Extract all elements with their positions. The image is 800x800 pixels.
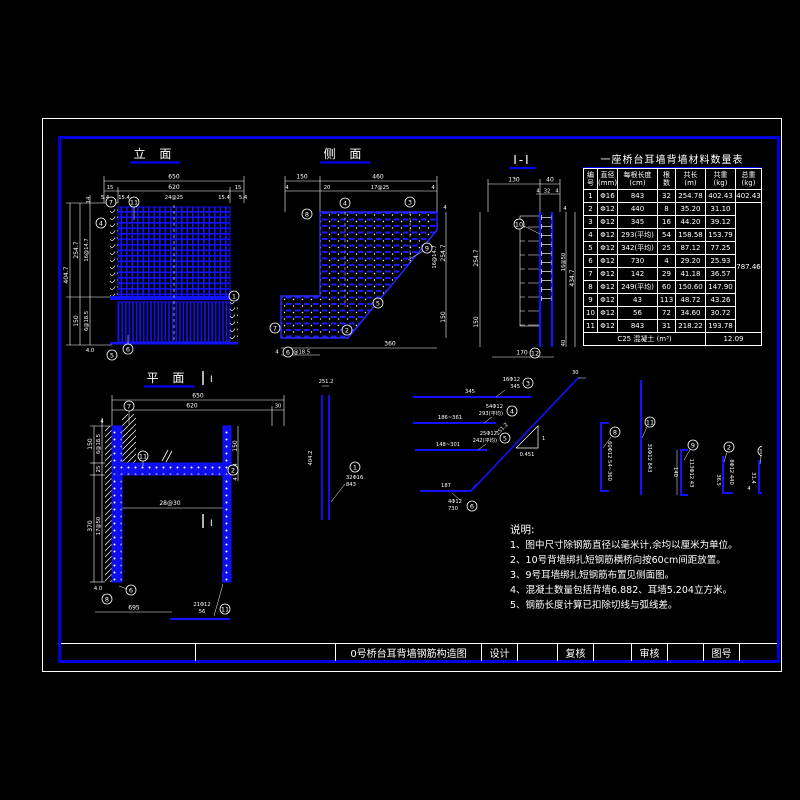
svg-text:4: 4	[99, 220, 103, 228]
dim-label: 15.4	[218, 195, 230, 201]
ref-circle: 6	[126, 585, 136, 595]
ref-circle: 3	[523, 378, 533, 388]
design-value	[518, 644, 558, 661]
plan-bar-callout: 21Φ12 56 11	[170, 572, 230, 619]
ref-circle: 3	[405, 197, 415, 207]
total-rest: 787.46	[736, 203, 762, 333]
ref-circle: 7	[106, 197, 116, 207]
drawing-title: 0号桥台耳背墙钢筋构造图	[336, 644, 482, 661]
ref-circle: 9	[688, 440, 698, 450]
table-cell: 402.43	[706, 190, 736, 203]
titlebar-blank-2	[196, 644, 336, 661]
table-cell: Φ12	[598, 281, 618, 294]
svg-text:11: 11	[139, 453, 147, 461]
dim-label: 4	[285, 185, 289, 191]
svg-text:6: 6	[129, 587, 133, 595]
table-cell: 32	[658, 190, 676, 203]
table-cell: 48.72	[676, 294, 706, 307]
ref-circle: 8	[102, 594, 112, 604]
svg-text:2: 2	[727, 444, 731, 452]
dim-label: 620	[168, 184, 180, 191]
svg-text:1: 1	[353, 464, 357, 472]
dim-label: 170	[516, 350, 528, 357]
ref-circle: 2	[228, 465, 238, 475]
plan-walls	[105, 414, 231, 582]
dim-label: 17@25	[371, 185, 389, 191]
table-cell: 25	[658, 242, 676, 255]
ref-circle: 7	[270, 323, 280, 333]
table-cell: 34.60	[676, 307, 706, 320]
detail-bar-3: 345 16Φ12 345 3	[413, 377, 533, 397]
note-line: 5、钢筋长度计算已扣除切线与弧线差。	[510, 598, 770, 613]
table-row: 11Φ1284331218.22193.78	[584, 320, 762, 333]
dim-label: 150	[296, 174, 308, 181]
table-footer-row: C25 混凝土 (m³) 12.09	[584, 333, 762, 346]
side-wall-outline	[281, 212, 437, 338]
dim-label: 254.7	[440, 244, 447, 261]
dim-label: 4	[555, 189, 559, 195]
section-cut-marks: I I	[203, 371, 213, 529]
table-cell: 4	[658, 255, 676, 268]
table-cell: 44.20	[676, 216, 706, 229]
svg-text:9: 9	[425, 245, 429, 253]
dim-label: 251.2	[319, 379, 334, 385]
dim-label: 150	[232, 440, 239, 452]
table-cell: 254.78	[676, 190, 706, 203]
table-cell: 843	[618, 190, 658, 203]
ref-circle: 4	[340, 198, 350, 208]
ref-circle: 4	[96, 218, 106, 228]
dim-label: 4.0	[86, 348, 94, 354]
svg-text:5: 5	[503, 435, 507, 443]
concrete-value: 12.09	[706, 333, 762, 346]
back-wall	[112, 463, 231, 475]
dim-label: 254.7	[73, 241, 80, 258]
dim-label: 370	[87, 520, 94, 532]
table-cell: 25.93	[706, 255, 736, 268]
ref-circle: 6	[123, 344, 133, 354]
dim-label: 4	[100, 419, 104, 425]
ref-circle: 11	[220, 604, 230, 614]
table-cell: 54	[658, 229, 676, 242]
rebar-label: 843	[346, 482, 356, 488]
table-cell: 193.78	[706, 320, 736, 333]
table-row: 7Φ121422941.1836.57	[584, 268, 762, 281]
column-header: 直径 (mm)	[598, 169, 618, 190]
column-header: 根 数	[658, 169, 676, 190]
table-cell: 440	[618, 203, 658, 216]
table-cell: 9	[584, 294, 598, 307]
table-cell: 60	[658, 281, 676, 294]
svg-text:5: 5	[376, 300, 380, 308]
table-cell: 6	[584, 255, 598, 268]
table-cell: 36.57	[706, 268, 736, 281]
dim-label: 130	[508, 177, 520, 184]
table-row: 1Φ1684332254.78402.43402.43	[584, 190, 762, 203]
ref-circle: 12	[530, 348, 540, 358]
table-cell: 4	[584, 229, 598, 242]
table-cell: 150.60	[676, 281, 706, 294]
table-row: 8Φ12249(平均)60150.60147.90	[584, 281, 762, 294]
table-cell: 158.58	[676, 229, 706, 242]
svg-text:2: 2	[345, 327, 349, 335]
svg-text:7: 7	[109, 199, 113, 207]
table-row: 9Φ124311348.7243.26	[584, 294, 762, 307]
note-line: 4、混凝土数量包括背墙6.882、耳墙5.204立方米。	[510, 583, 770, 598]
svg-text:6: 6	[470, 503, 474, 511]
ref-circle: 9	[422, 243, 432, 253]
side-view: 侧 面 150 460 4 20 17@25 4 4 254.7 16@14.7…	[268, 145, 480, 367]
detail-d3: 140 9 113Φ12 43	[672, 440, 698, 495]
table-cell: 77.25	[706, 242, 736, 255]
dim-label: 28@30	[159, 500, 180, 507]
table-cell: 843	[618, 320, 658, 333]
table-cell: 35.20	[676, 203, 706, 216]
material-table-title: 一座桥台耳墙背墙材料数量表	[583, 151, 761, 169]
svg-text:11: 11	[130, 199, 138, 207]
figno-label: 图号	[704, 644, 740, 661]
svg-text:7: 7	[127, 403, 131, 411]
table-cell: 30.72	[706, 307, 736, 320]
rebar-label: 32Φ16	[346, 475, 363, 481]
review-label: 复核	[558, 644, 594, 661]
table-cell: 342(平均)	[618, 242, 658, 255]
detail-d1: 8 60Φ12 54~360	[601, 423, 620, 491]
section-mark-label: I	[210, 375, 213, 385]
table-cell: Φ12	[598, 216, 618, 229]
rebar-label: 8Φ12 440	[728, 459, 734, 485]
table-cell: 29	[658, 268, 676, 281]
column-header: 共长 (m)	[676, 169, 706, 190]
rebar-label: 345	[510, 384, 520, 390]
break-symbol	[162, 450, 172, 462]
svg-text:4: 4	[510, 408, 514, 416]
notes-title: 说明:	[510, 523, 770, 538]
rebar-label: 31Φ12 843	[646, 444, 652, 473]
table-cell: Φ12	[598, 255, 618, 268]
ref-circle: 10	[514, 219, 524, 229]
svg-text:10: 10	[515, 221, 523, 229]
section-mark-label: I	[210, 519, 213, 529]
dim-label: 140	[672, 467, 678, 477]
svg-text:7: 7	[273, 325, 277, 333]
rebar-label: 730	[448, 506, 458, 512]
table-cell: 293(平均)	[618, 229, 658, 242]
dim-label: 15	[235, 185, 242, 191]
table-cell: 10	[584, 307, 598, 320]
table-cell: Φ12	[598, 320, 618, 333]
table-cell: 31.10	[706, 203, 736, 216]
table-cell: 29.20	[676, 255, 706, 268]
rebar-label: 21Φ12	[193, 602, 210, 608]
svg-text:9: 9	[691, 442, 695, 450]
dim-label: 14	[86, 196, 92, 203]
material-table: 编 号直径 (mm)每根长度 (cm)根 数共长 (m)共重 (kg)总重 (k…	[583, 168, 762, 346]
dim-label: 15.4	[118, 195, 130, 201]
column-header: 编 号	[584, 169, 598, 190]
svg-text:4: 4	[343, 200, 347, 208]
rebar-label: 16Φ12	[503, 377, 520, 383]
svg-text:11: 11	[221, 606, 229, 614]
audit-label: 审核	[632, 644, 668, 661]
column-header: 每根长度 (cm)	[618, 169, 658, 190]
table-cell: 147.90	[706, 281, 736, 294]
rebar-label: 113Φ12 43	[688, 459, 694, 488]
table-cell: 16	[658, 216, 676, 229]
svg-text:1: 1	[232, 293, 236, 301]
notes-block: 说明: 1、图中尺寸除钢筋直径以毫米计,余均以厘米为单位。 2、10号背墙绑扎短…	[510, 523, 770, 613]
dim-label: 20	[324, 185, 331, 191]
ref-circle: 4	[507, 406, 517, 416]
table-cell: 31	[658, 320, 676, 333]
ear-wall-left	[112, 426, 122, 582]
section-view: I-I 130 40 4 32 4 254.7 150 16@50 434.7 …	[462, 150, 582, 366]
svg-text:3: 3	[526, 380, 530, 388]
ref-circle: 11	[138, 451, 148, 461]
rebar-label: 293(平均)	[479, 409, 503, 417]
dim-label: 150	[73, 315, 80, 327]
ref-circle: 6	[467, 501, 477, 511]
rebar-label: 60Φ12 54~360	[606, 441, 612, 481]
material-table-body: 1Φ1684332254.78402.43402.432Φ12440835.20…	[584, 190, 762, 333]
dim-label: 460	[372, 174, 384, 181]
dim-label: 150	[87, 438, 94, 450]
ref-circle: 11	[645, 417, 655, 427]
ref-circle: 1	[350, 462, 360, 472]
svg-text:6: 6	[286, 349, 290, 357]
dim-label: 4	[443, 205, 447, 211]
table-cell: Φ12	[598, 229, 618, 242]
total-first: 402.43	[736, 190, 762, 203]
dim-label: 16@50	[561, 253, 567, 271]
detail-d4: 2 8Φ12 440 36.5	[715, 442, 734, 493]
dim-label: 620	[186, 403, 198, 410]
ref-circle: 2	[724, 442, 734, 452]
dim-label: 4	[747, 486, 751, 492]
column-header: 总重 (kg)	[736, 169, 762, 190]
table-cell: Φ12	[598, 203, 618, 216]
dim-label: 16@14.7	[84, 238, 90, 261]
dim-label: 40	[546, 177, 554, 184]
dim-label: 25	[96, 466, 102, 473]
ref-circle: 1	[229, 291, 239, 301]
table-cell: 218.22	[676, 320, 706, 333]
dim-label: 695	[128, 605, 140, 612]
dim-label: 404.2	[308, 451, 314, 466]
rebar-label: 54Φ12	[486, 404, 503, 410]
dim-label: 30	[572, 370, 579, 376]
table-row: 6Φ12730429.2025.93	[584, 255, 762, 268]
concrete-label: C25 混凝土 (m³)	[584, 333, 706, 346]
detail-bar-6: 187 4Φ12 730 6	[420, 483, 477, 512]
svg-text:12: 12	[531, 350, 539, 358]
ref-circle: 5	[373, 298, 383, 308]
ref-circle: 2	[342, 325, 352, 335]
table-cell: 1	[584, 190, 598, 203]
table-cell: Φ12	[598, 294, 618, 307]
svg-text:8: 8	[105, 596, 109, 604]
table-cell: 345	[618, 216, 658, 229]
ref-circle: 7	[124, 401, 134, 411]
table-cell: 43	[618, 294, 658, 307]
column-header: 共重 (kg)	[706, 169, 736, 190]
rebar-label: 56	[199, 609, 206, 615]
design-label: 设计	[482, 644, 518, 661]
side-title: 侧 面	[324, 147, 367, 161]
svg-text:2: 2	[231, 467, 235, 475]
table-cell: 56	[618, 307, 658, 320]
dim-label: 30	[275, 404, 282, 410]
section-title: I-I	[513, 153, 530, 167]
table-row: 2Φ12440835.2031.10787.46	[584, 203, 762, 216]
table-cell: 43.26	[706, 294, 736, 307]
table-cell: 72	[658, 307, 676, 320]
dim-label: 15	[107, 185, 114, 191]
dim-label: 150	[473, 316, 480, 328]
dim-label: 36.5	[715, 474, 721, 486]
figno-value	[740, 644, 777, 661]
table-cell: Φ12	[598, 268, 618, 281]
dim-label: 360	[384, 341, 396, 348]
wingwall-hatch	[105, 426, 112, 582]
table-cell: 249(平均)	[618, 281, 658, 294]
dim-label: 16@14.7	[432, 245, 438, 268]
detail-bar-1: 251.2 404.2 1 32Φ16 843	[308, 379, 363, 520]
audit-value	[668, 644, 704, 661]
svg-text:8: 8	[305, 211, 309, 219]
table-cell: 7	[584, 268, 598, 281]
table-cell: 153.79	[706, 229, 736, 242]
note-line: 3、9号耳墙绑扎短钢筋布置见侧面图。	[510, 568, 770, 583]
svg-text:5: 5	[110, 352, 114, 360]
table-cell: 730	[618, 255, 658, 268]
dim-label: 4.0	[94, 586, 102, 592]
dim-label: 17@50	[96, 517, 102, 535]
title-bar: 0号桥台耳背墙钢筋构造图 设计 复核 审核 图号	[61, 643, 777, 661]
plan-title: 平 面	[147, 371, 190, 385]
slope-rise: 1	[542, 436, 545, 442]
dim-label: 434.7	[569, 269, 576, 286]
detail-bar-4: 186~361 54Φ12 293(平均) 4	[413, 404, 517, 423]
dim-label: 31.4	[750, 472, 756, 484]
svg-text:3: 3	[408, 199, 412, 207]
table-cell: 39.12	[706, 216, 736, 229]
table-cell: 8	[584, 281, 598, 294]
table-cell: 87.12	[676, 242, 706, 255]
ref-circle: 11	[129, 197, 139, 207]
table-cell: Φ12	[598, 307, 618, 320]
plan-view: 平 面 I I 650 620 30 150 6@18.5 25 370	[62, 366, 308, 630]
table-cell: 11	[584, 320, 598, 333]
svg-text:11: 11	[646, 419, 654, 427]
dim-label: 4	[275, 350, 279, 356]
titlebar-blank-1	[61, 644, 196, 661]
elevation-view: 立 面 650 15 620 15 5.4 15.4 24@25 15.4 5.…	[60, 145, 292, 361]
table-row: 10Φ12567234.6030.72	[584, 307, 762, 320]
ref-circle: 8	[302, 209, 312, 219]
svg-text:6: 6	[126, 346, 130, 354]
table-cell: 142	[618, 268, 658, 281]
elevation-rebar-mesh	[110, 205, 238, 345]
table-row: 5Φ12342(平均)2587.1277.25	[584, 242, 762, 255]
ref-circle: 10	[758, 446, 762, 456]
table-cell: 2	[584, 203, 598, 216]
table-cell: 113	[658, 294, 676, 307]
dim-label: 32	[544, 189, 551, 195]
ref-circle: 6	[283, 347, 293, 357]
table-row: 3Φ123451644.2039.12	[584, 216, 762, 229]
dim-label: 40	[561, 340, 567, 347]
dim-label: 404.7	[63, 266, 70, 283]
dim-label: 187	[441, 483, 451, 489]
dim-label: 6@18.5	[96, 434, 102, 454]
svg-text:10: 10	[759, 448, 762, 456]
table-cell: Φ16	[598, 190, 618, 203]
table-cell: Φ12	[598, 242, 618, 255]
note-line: 2、10号背墙绑扎短钢筋横桥向按60cm间距放置。	[510, 553, 770, 568]
ref-circle: 5	[107, 350, 117, 360]
slope-run: 0.451	[520, 452, 535, 458]
dim-label: 150	[440, 311, 447, 323]
dim-label: 148~301	[436, 442, 460, 448]
dim-label: 186~361	[438, 415, 462, 421]
ref-circle: 8	[610, 427, 620, 437]
table-cell: 41.18	[676, 268, 706, 281]
table-cell: 5	[584, 242, 598, 255]
dim-label: 4	[563, 206, 567, 212]
material-table-head: 编 号直径 (mm)每根长度 (cm)根 数共长 (m)共重 (kg)总重 (k…	[584, 169, 762, 190]
dim-label: 345	[465, 389, 475, 395]
review-value	[594, 644, 632, 661]
dim-label: 650	[192, 393, 204, 400]
ref-circle: 5	[500, 433, 510, 443]
table-row: 4Φ12293(平均)54158.58153.79	[584, 229, 762, 242]
rebar-label: 242(平均)	[473, 436, 497, 444]
table-cell: 3	[584, 216, 598, 229]
dim-label: 4	[431, 185, 435, 191]
table-cell: 8	[658, 203, 676, 216]
dim-label: 650	[168, 174, 180, 181]
cad-drawing-page: 立 面 650 15 620 15 5.4 15.4 24@25 15.4 5.…	[0, 0, 800, 800]
note-line: 1、图中尺寸除钢筋直径以毫米计,余均以厘米为单位。	[510, 538, 770, 553]
dim-label: 6@18.5	[84, 311, 90, 331]
detail-d2: 11 31Φ12 843	[641, 380, 655, 495]
dim-label: 254.7	[473, 249, 480, 266]
dim-label: 5.4	[239, 195, 248, 201]
svg-text:8: 8	[613, 429, 617, 437]
rebar-details: 251.2 404.2 1 32Φ16 843 345 16Φ12 345 3 …	[300, 366, 762, 544]
dim-label: 24@25	[165, 195, 183, 201]
detail-d5: 10 72Φ12 56 31.4 4	[747, 446, 762, 493]
elevation-title: 立 面	[134, 146, 177, 161]
ear-wall-right	[223, 426, 231, 582]
